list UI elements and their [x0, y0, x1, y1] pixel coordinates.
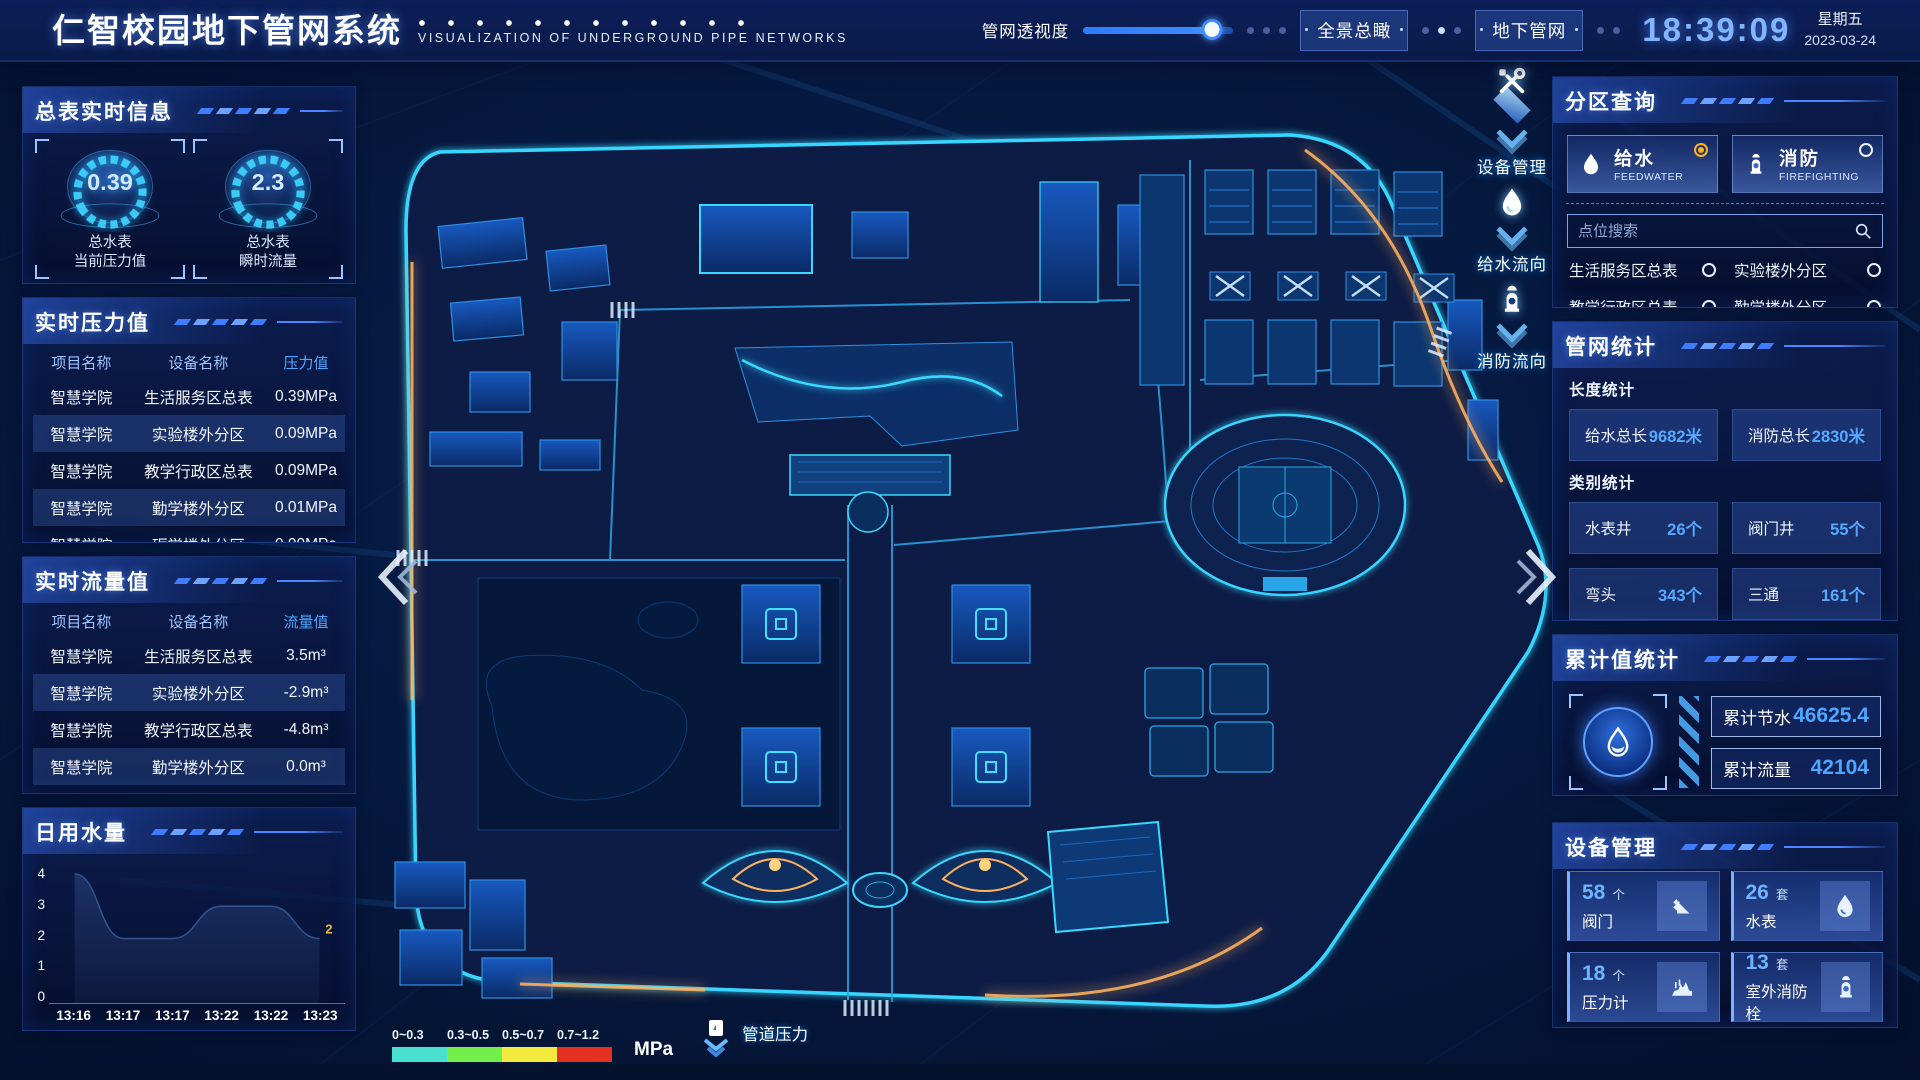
map-tool-device-management[interactable]: 设备管理 [1477, 62, 1547, 178]
slashes-decoration [199, 108, 288, 114]
zone-item[interactable]: 勤学楼外分区 [1734, 296, 1881, 308]
panel-title: 总表实时信息 [35, 96, 173, 126]
radio-unselected[interactable] [1859, 143, 1873, 157]
stadium [1165, 415, 1405, 595]
panel-zone-query: 分区查询 给水 FEEDWATER 消防 [1552, 76, 1898, 308]
tab-firefighting[interactable]: 消防 FIREFIGHTING [1732, 135, 1883, 193]
pond [638, 602, 698, 638]
water-saving-icon-frame [1569, 694, 1667, 790]
app-subtitle: VISUALIZATION OF UNDERGROUND PIPE NETWOR… [418, 31, 848, 45]
stat-valve-wells: 阀门井55个 [1732, 502, 1881, 554]
slashes-decoration [1706, 656, 1795, 662]
table-row: 智慧学院勤学楼外分区0.0m³ [33, 748, 345, 785]
pressure-legend: 0~0.3 0.3~0.5 0.5~0.7 0.7~1.2 MPa 管道压力 [392, 1018, 808, 1062]
search-input[interactable] [1578, 223, 1854, 240]
brand: 仁智校园地下管网系统 VISUALIZATION OF UNDERGROUND … [52, 14, 848, 47]
gauge-dial: 0.39 [47, 145, 173, 232]
pipe-pressure-marker-icon [699, 1018, 733, 1062]
table-row: 智慧学院教学行政区总表0.09MPa [33, 452, 345, 489]
panel-realtime-pressure: 实时压力值 项目名称设备名称压力值 智慧学院生活服务区总表0.39MPa 智慧学… [22, 297, 356, 543]
search-icon[interactable] [1854, 222, 1872, 240]
dashboard: 仁智校园地下管网系统 VISUALIZATION OF UNDERGROUND … [0, 0, 1920, 1080]
tab-feedwater[interactable]: 给水 FEEDWATER [1567, 135, 1718, 193]
stat-elbows: 弯头343个 [1569, 568, 1718, 620]
clock: 18:39:09 [1642, 11, 1790, 49]
valve-icon [1657, 881, 1707, 931]
table-row: 智慧学院砺学楼外分区2.3m³ [33, 785, 345, 794]
pipe-pressure-label: 管道压力 [742, 1021, 808, 1045]
x-axis-labels: 13:1613:1713:1713:2213:2213:23 [49, 1008, 345, 1023]
slashes-decoration [153, 829, 242, 835]
y-axis-labels: 43210 [31, 866, 49, 1004]
hydrant-icon [1743, 151, 1769, 177]
panel-realtime-flow: 实时流量值 项目名称设备名称流量值 智慧学院生活服务区总表3.5m³ 智慧学院实… [22, 556, 356, 794]
stat-feedwater-length: 给水总长9682米 [1569, 409, 1718, 461]
bottom-strip [0, 1064, 1920, 1080]
gauge-flow: 2.3 总水表 瞬时流量 [193, 139, 343, 279]
panel-realtime-info: 总表实时信息 0.39 [22, 86, 356, 284]
date: 2023-03-24 [1804, 31, 1876, 50]
device-card-water-meters[interactable]: 26套 水表 [1731, 871, 1884, 941]
water-drop-icon [1495, 185, 1529, 219]
radio-unselected[interactable] [1867, 263, 1881, 277]
title-dots-decoration [418, 19, 748, 27]
panel-title: 累计值统计 [1565, 644, 1680, 674]
slider-knob[interactable] [1202, 19, 1223, 40]
device-card-valves[interactable]: 58个 阀门 [1567, 871, 1720, 941]
water-drop-icon [1578, 151, 1604, 177]
panel-title: 实时流量值 [35, 566, 150, 596]
slashes-decoration [1683, 343, 1772, 349]
panel-daily-water-usage: 日用水量 43210 2 13:1613:1713:1713:2213:2213… [22, 807, 356, 1031]
stat-tees: 三通161个 [1732, 568, 1881, 620]
map-tool-feedwater-flow[interactable]: 给水流向 [1477, 185, 1547, 275]
gauge-label: 总水表 瞬时流量 [239, 234, 297, 273]
panel-title: 日用水量 [35, 817, 127, 847]
panel-title: 管网统计 [1565, 331, 1657, 361]
daily-usage-chart: 43210 2 13:1613:1713:1713:2213:2213:23 [23, 854, 355, 1023]
legend-segment: 0.3~0.5 [447, 1028, 502, 1062]
table-row: 智慧学院实验楼外分区0.09MPa [33, 415, 345, 452]
tools-icon [1493, 62, 1531, 100]
end-value-label: 2 [325, 922, 332, 937]
table-header: 项目名称设备名称流量值 [33, 605, 345, 637]
table-row: 智慧学院砺学楼外分区0.00MPa [33, 526, 345, 543]
slashes-decoration [1683, 98, 1772, 104]
cumulative-water-saved: 累计节水 46625.4 [1711, 696, 1881, 737]
date-box: 星期五 2023-03-24 [1804, 10, 1876, 49]
flow-table: 项目名称设备名称流量值 智慧学院生活服务区总表3.5m³ 智慧学院实验楼外分区-… [23, 603, 355, 794]
radio-selected[interactable] [1694, 143, 1708, 157]
table-row: 智慧学院生活服务区总表0.39MPa [33, 378, 345, 415]
gauge-dial: 2.3 [205, 145, 331, 232]
app-title: 仁智校园地下管网系统 [52, 14, 402, 47]
device-card-pressure-gauges[interactable]: 18个 压力计 [1567, 952, 1720, 1022]
water-meter-icon [1820, 881, 1870, 931]
radio-unselected[interactable] [1702, 263, 1716, 277]
divider [1566, 203, 1884, 204]
stripe-decoration [1679, 696, 1699, 788]
pressure-gauge-icon [1657, 962, 1707, 1012]
search-box[interactable] [1567, 214, 1883, 248]
underground-pipes-button[interactable]: 地下管网 [1475, 10, 1583, 51]
radio-unselected[interactable] [1702, 300, 1716, 308]
slashes-decoration [176, 319, 265, 325]
cumulative-flow: 累计流量 42104 [1711, 748, 1881, 789]
panel-title: 分区查询 [1565, 86, 1657, 116]
top-bar: 仁智校园地下管网系统 VISUALIZATION OF UNDERGROUND … [0, 0, 1920, 62]
table-row: 智慧学院教学行政区总表-4.8m³ [33, 711, 345, 748]
table-row: 智慧学院实验楼外分区-2.9m³ [33, 674, 345, 711]
panel-cumulative-stats: 累计值统计 累计节水 46625.4 [1552, 634, 1898, 796]
panel-device-management: 设备管理 58个 阀门 26套 水表 [1552, 822, 1898, 1028]
transparency-slider-label: 管网透视度 [982, 18, 1070, 42]
legend-segment: 0.5~0.7 [502, 1028, 557, 1062]
panel-title: 实时压力值 [35, 307, 150, 337]
panel-pipe-statistics: 管网统计 长度统计 给水总长9682米 消防总长2830米 类别统计 水表井26… [1552, 321, 1898, 621]
gauge-pressure: 0.39 总水表 当前压力值 [35, 139, 185, 279]
zone-item[interactable]: 教学行政区总表 [1569, 296, 1716, 308]
water-drop-icon [1601, 725, 1635, 759]
svg-text:2.3: 2.3 [252, 169, 285, 195]
device-card-outdoor-hydrants[interactable]: 13套 室外消防栓 [1731, 952, 1884, 1022]
pressure-table: 项目名称设备名称压力值 智慧学院生活服务区总表0.39MPa 智慧学院实验楼外分… [23, 344, 355, 543]
gauge-label: 总水表 当前压力值 [74, 234, 147, 273]
area-chart: 2 [49, 866, 345, 1004]
slashes-decoration [176, 578, 265, 584]
legend-unit: MPa [634, 1039, 673, 1061]
legend-segment: 0.7~1.2 [557, 1028, 612, 1062]
hydrant-icon [1821, 962, 1870, 1012]
overview-button[interactable]: 全景总瞰 [1300, 10, 1408, 51]
category-stats-title: 类别统计 [1553, 461, 1897, 502]
hydrant-icon [1495, 282, 1529, 316]
weekday: 星期五 [1818, 10, 1863, 30]
dots-decoration [1422, 27, 1461, 34]
table-header: 项目名称设备名称压力值 [33, 346, 345, 378]
zone-list: 生活服务区总表 实验楼外分区 教学行政区总表 勤学楼外分区 砺学楼外分区 宿舍区… [1553, 259, 1897, 308]
panel-title: 设备管理 [1565, 832, 1657, 862]
table-row: 智慧学院生活服务区总表3.5m³ [33, 637, 345, 674]
zone-item[interactable]: 生活服务区总表 [1569, 259, 1716, 281]
map-tool-fire-flow[interactable]: 消防流向 [1477, 282, 1547, 372]
slashes-decoration [1683, 844, 1772, 850]
map-next-arrow[interactable] [1516, 545, 1562, 609]
dots-decoration [1597, 27, 1620, 34]
zone-item[interactable]: 实验楼外分区 [1734, 259, 1881, 281]
length-stats-title: 长度统计 [1553, 368, 1897, 409]
legend-segment: 0~0.3 [392, 1028, 447, 1062]
transparency-slider[interactable] [1083, 20, 1233, 40]
radio-unselected[interactable] [1867, 300, 1881, 308]
dots-decoration [1247, 27, 1286, 34]
stat-fire-length: 消防总长2830米 [1732, 409, 1881, 461]
map-prev-arrow[interactable] [372, 545, 418, 609]
svg-text:0.39: 0.39 [87, 169, 133, 195]
stat-water-meter-wells: 水表井26个 [1569, 502, 1718, 554]
table-row: 智慧学院勤学楼外分区0.01MPa [33, 489, 345, 526]
